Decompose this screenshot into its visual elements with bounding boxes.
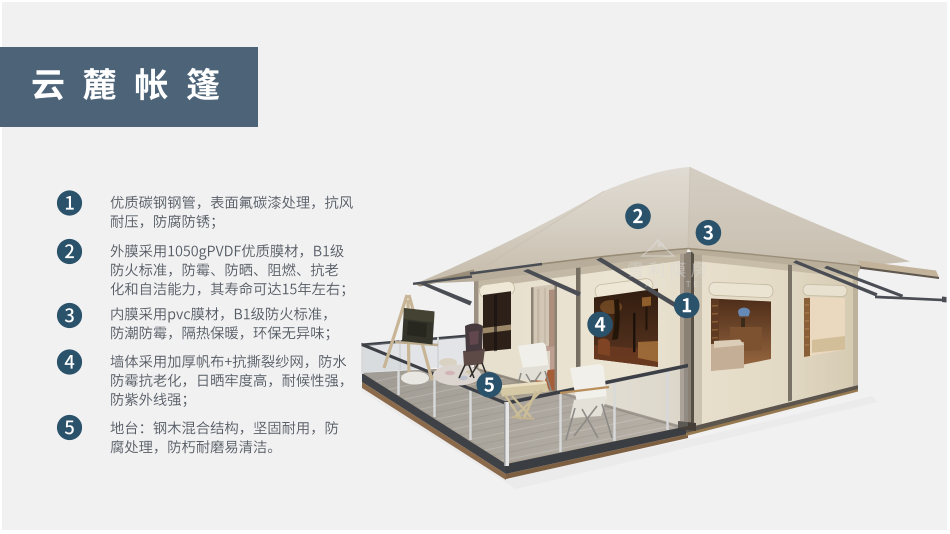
svg-text:XUELI TENT: XUELI TENT: [645, 280, 717, 289]
